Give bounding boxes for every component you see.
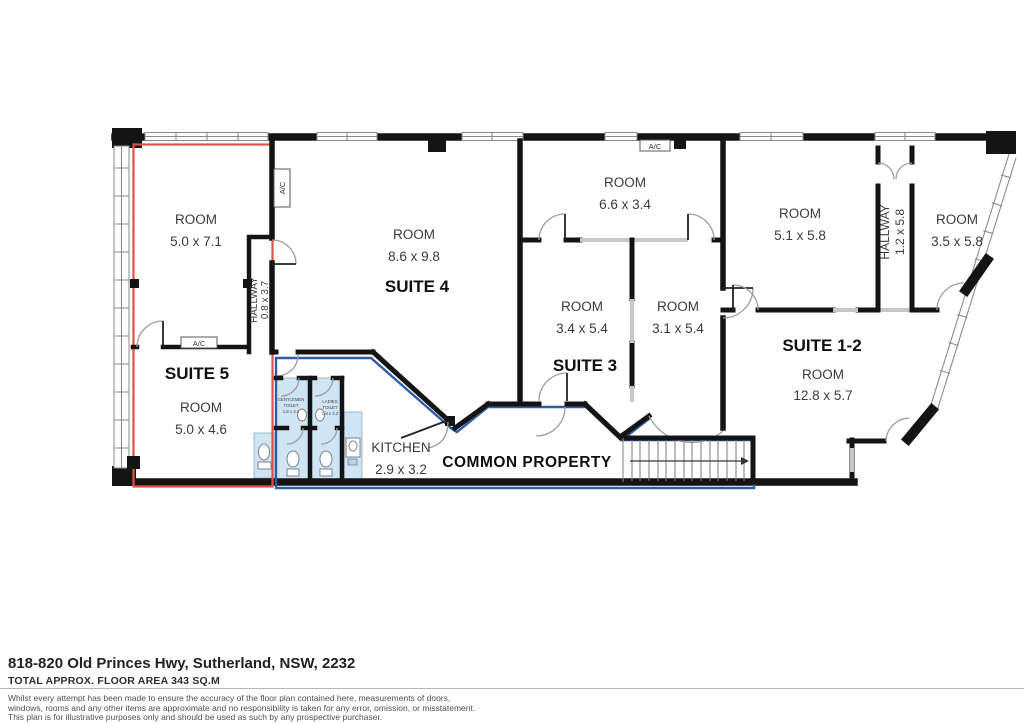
angled-window-wall [908, 154, 1016, 439]
room-dims: 5.1 x 5.8 [774, 228, 826, 243]
suite-label: SUITE 5 [165, 364, 229, 383]
room-label: ROOM [393, 227, 435, 242]
room-dims: 6.6 x 3.4 [599, 197, 651, 212]
room-label: ROOM [936, 212, 978, 227]
hallway-label: HALLWAY [249, 277, 260, 323]
kitchen-dims: 2.9 x 3.2 [375, 462, 427, 477]
ac-label: A/C [649, 142, 662, 151]
room-dims: 12.8 x 5.7 [793, 388, 852, 403]
room-label: ROOM [561, 299, 603, 314]
room-label: ROOM [180, 400, 222, 415]
ladies-label: TOILET [323, 405, 338, 410]
ladies-label: LADIES [322, 399, 337, 404]
stove [348, 459, 357, 465]
staircase [623, 438, 753, 482]
wall-mark [127, 456, 140, 469]
property-address: 818-820 Old Princes Hwy, Sutherland, NSW… [8, 654, 1024, 674]
kitchen-label: KITCHEN [371, 440, 430, 455]
toilet-fixture [259, 444, 270, 460]
suite-label: SUITE 3 [553, 356, 617, 375]
room-dims: 8.6 x 9.8 [388, 249, 440, 264]
room-label: ROOM [802, 367, 844, 382]
ac-label: A/C [278, 181, 287, 194]
suite-3: A/C ROOM 6.6 x 3.4 ROOM 3.4 x 5.4 ROOM 3… [520, 140, 753, 428]
hallway-dims: 1.2 x 5.8 [893, 209, 907, 255]
room-dims: 3.5 x 5.8 [931, 234, 983, 249]
left-window-wall [114, 146, 129, 468]
stair-direction-arrow [741, 457, 749, 465]
footer-divider [0, 688, 1024, 689]
hallway-dims: 0.8 x 3.7 [260, 280, 271, 319]
ac-label: A/C [193, 339, 206, 348]
sink-bowl [349, 441, 357, 451]
toilet-fixture [287, 451, 299, 467]
ladies-dims: 1.8 x 3.2 [322, 411, 339, 416]
toilet-cistern [287, 469, 299, 476]
room-label: ROOM [779, 206, 821, 221]
disclaimer: Whilst every attempt has been made to en… [8, 694, 1024, 723]
room-dims: 5.0 x 7.1 [170, 234, 222, 249]
wall-stub [428, 140, 446, 152]
floor-area-text: TOTAL APPROX. FLOOR AREA 343 SQ.M [8, 674, 1024, 688]
corner-block-top-right [986, 131, 1016, 154]
room-dims: 3.4 x 5.4 [556, 321, 608, 336]
toilet-cistern [258, 462, 271, 469]
suite-label: SUITE 4 [385, 277, 450, 296]
common-property-label: COMMON PROPERTY [442, 454, 612, 471]
wall-stub [674, 140, 686, 149]
floor-plan-svg: A/C A/C ROOM 5.0 x 7.1 HALLWAY 0.8 x 3.7… [0, 0, 1024, 648]
floor-plan-page: { "floorplan": { "suite5": { "label": "S… [0, 0, 1024, 724]
room-label: ROOM [604, 175, 646, 190]
room-label: ROOM [657, 299, 699, 314]
disclaimer-line: This plan is for illustrative purposes o… [8, 713, 1024, 723]
hallway-label: HALLWAY [878, 204, 892, 259]
room-label: ROOM [175, 212, 217, 227]
gents-dims: 1.8 x 3.2 [283, 409, 300, 414]
door-post [445, 416, 455, 426]
room-dims: 3.1 x 5.4 [652, 321, 704, 336]
suite-label: SUITE 1-2 [782, 336, 861, 355]
toilet-fixture [320, 451, 332, 467]
toilet-cistern [320, 469, 332, 476]
wall-mark [130, 279, 139, 288]
gents-label: TOILET [284, 403, 299, 408]
gents-label: GENTLEMEN [278, 397, 305, 402]
bottom-right-walls [849, 418, 909, 482]
room-dims: 5.0 x 4.6 [175, 422, 227, 437]
